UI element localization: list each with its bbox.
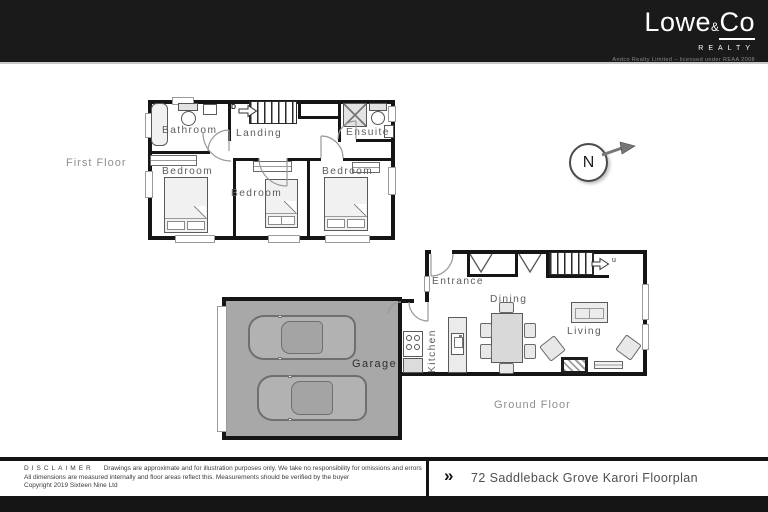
stairs-icon <box>249 101 297 124</box>
wall-segment <box>233 158 236 240</box>
chair-icon <box>499 363 514 374</box>
room-label-garage: Garage <box>352 358 397 370</box>
wall-segment <box>343 158 395 161</box>
bed-icon <box>265 179 298 228</box>
footer-bottom-bar <box>0 496 768 512</box>
dining-table <box>491 313 523 363</box>
wardrobe-icon <box>150 155 197 166</box>
burner <box>406 335 412 341</box>
stairs-icon <box>549 252 594 275</box>
wall-segment <box>515 250 518 276</box>
car-mirror <box>278 357 282 360</box>
logo-realty: REALTY <box>612 45 755 52</box>
room-label-dining: Dining <box>490 294 527 305</box>
chevron-icon: » <box>444 466 453 486</box>
island-sink-icon <box>451 333 464 355</box>
logo-word2: Co <box>719 7 755 40</box>
room-label-bathroom: Bathroom <box>162 125 217 136</box>
burner <box>406 344 412 350</box>
window-marker <box>175 235 215 243</box>
first-floor-title: First Floor <box>66 157 127 169</box>
car-cabin <box>281 321 323 354</box>
sofa-seat <box>575 308 604 319</box>
bed-blanket-line <box>165 218 207 219</box>
north-compass: N <box>569 143 608 182</box>
room-label-landing: Landing <box>236 128 282 139</box>
car-mirror <box>288 375 292 378</box>
armchair-icon <box>615 334 642 361</box>
bed-blanket-line <box>266 213 297 214</box>
door-arc <box>409 302 428 321</box>
toilet-bowl <box>371 111 385 125</box>
double-door-mark <box>470 254 492 272</box>
stair-direction-label: u <box>612 257 616 264</box>
toilet-icon <box>369 103 387 125</box>
pillow <box>347 219 365 228</box>
disclaimer-text-3: Copyright 2019 Sixteen Nine Ltd <box>24 482 422 491</box>
car-mirror <box>278 315 282 318</box>
needle-head <box>620 142 635 154</box>
window-marker <box>268 235 300 243</box>
burner <box>414 335 420 341</box>
wall-segment <box>338 100 341 142</box>
double-door-mark <box>519 254 541 272</box>
wardrobe-icon <box>253 161 292 172</box>
garage-door <box>217 306 227 432</box>
room-label-living: Living <box>567 326 602 337</box>
up-arrow-icon <box>592 259 609 270</box>
pillow <box>187 221 205 230</box>
wall-segment <box>546 275 609 278</box>
chair-icon <box>524 344 536 359</box>
toilet-icon <box>178 103 198 126</box>
logo: Lowe&Co REALTY Andco Realty Limited – li… <box>612 9 755 63</box>
room-label-bedroom-left: Bedroom <box>162 166 213 177</box>
disclaimer-text-1: Drawings are approximate and for illustr… <box>104 465 422 474</box>
wall-segment <box>307 158 310 240</box>
wall-segment <box>425 250 429 276</box>
room-label-bedroom-middle: Bedroom <box>231 188 282 199</box>
sink-icon <box>203 104 217 115</box>
wall-segment <box>467 250 470 276</box>
window-marker <box>325 235 370 243</box>
toilet-bowl <box>181 111 196 126</box>
disclaimer: DISCLAIMER Drawings are approximate and … <box>24 465 422 491</box>
disclaimer-text-2: All dimensions are measured internally a… <box>24 474 422 483</box>
chair-icon <box>480 323 492 338</box>
window-marker <box>642 324 649 350</box>
wall-segment <box>298 116 341 119</box>
logo-tagline: Andco Realty Limited – licensed under RE… <box>612 57 755 63</box>
stove-icon <box>403 331 423 357</box>
window-marker <box>642 284 649 320</box>
window-marker <box>145 171 153 198</box>
top-bar: Lowe&Co REALTY Andco Realty Limited – li… <box>0 0 768 64</box>
plan-title: 72 Saddleback Grove Karori Floorplan <box>471 471 698 485</box>
bed-icon <box>164 177 208 233</box>
disclaimer-title: DISCLAIMER <box>24 465 94 474</box>
bed-blanket-line <box>325 216 367 217</box>
burner <box>414 344 420 350</box>
wall-segment <box>307 158 321 161</box>
double-door-marks <box>470 254 541 272</box>
shower-icon <box>343 103 367 127</box>
window-marker <box>424 276 430 292</box>
wall-segment <box>425 292 429 302</box>
car-icon <box>257 375 367 421</box>
kitchen-bench <box>403 358 423 373</box>
tv-cabinet <box>594 361 623 369</box>
pillow <box>167 221 185 230</box>
faucet <box>459 335 462 338</box>
pillow <box>268 216 282 225</box>
compass-label: N <box>583 154 595 172</box>
bed-fold <box>194 206 206 218</box>
fireplace-icon <box>561 357 588 374</box>
toilet-tank <box>178 103 198 111</box>
compass-needle <box>602 142 635 155</box>
logo-wordmark: Lowe&Co <box>612 9 755 41</box>
disclaimer-line-1: DISCLAIMER Drawings are approximate and … <box>24 465 422 474</box>
toilet-tank <box>369 103 387 111</box>
wall-segment <box>356 139 395 142</box>
door-arc <box>431 254 453 276</box>
wall-segment <box>398 299 414 303</box>
window-marker <box>388 106 396 122</box>
bed-fold <box>354 204 366 216</box>
room-label-ensuite: Ensuite <box>346 127 390 138</box>
stair-direction-label: D <box>231 104 236 111</box>
chair-icon <box>524 323 536 338</box>
bed-fold <box>284 201 296 213</box>
pillow <box>281 216 295 225</box>
room-label-bedroom-right: Bedroom <box>322 166 373 177</box>
car-icon <box>248 315 356 360</box>
sink-bowl <box>454 337 463 348</box>
car-mirror <box>288 418 292 421</box>
wall-segment <box>148 151 210 154</box>
pillow <box>327 219 345 228</box>
room-label-kitchen: Kitchen <box>427 327 438 373</box>
room-label-entrance: Entrance <box>432 276 484 287</box>
window-marker <box>388 167 396 195</box>
logo-word1: Lowe <box>644 7 711 37</box>
chair-icon <box>480 344 492 359</box>
car-cabin <box>291 381 333 415</box>
sofa-icon <box>571 302 608 323</box>
footer-divider <box>426 461 429 496</box>
ground-floor-title: Ground Floor <box>494 399 571 411</box>
bed-icon <box>324 177 368 231</box>
